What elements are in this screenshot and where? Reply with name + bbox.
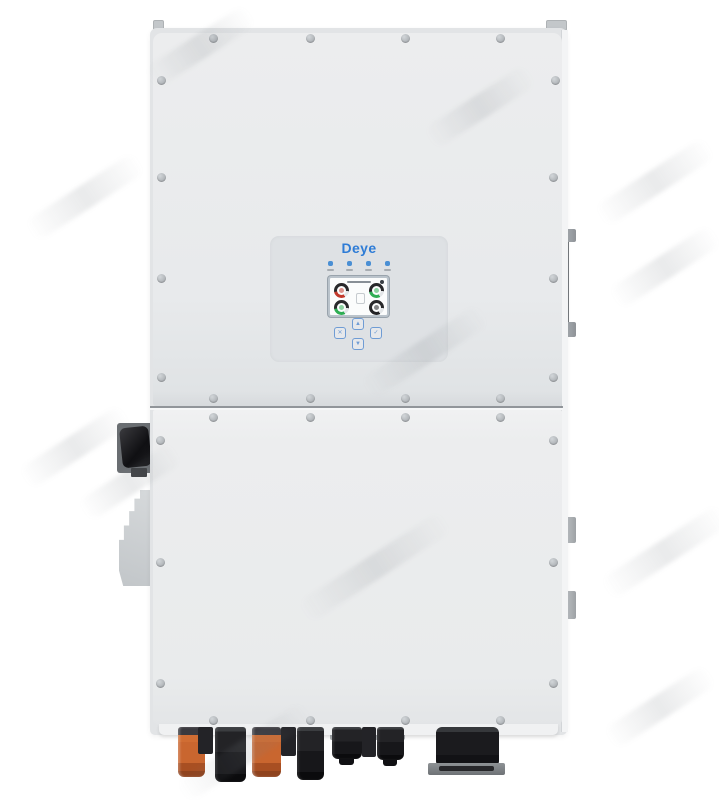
- brand-logo: Deye: [270, 241, 448, 255]
- watermark-streak: [603, 664, 717, 749]
- screw: [209, 413, 218, 422]
- panel-seam-highlight: [150, 408, 563, 410]
- screw: [401, 394, 410, 403]
- screw: [496, 413, 505, 422]
- screw: [157, 173, 166, 182]
- up-button: ▲: [352, 318, 364, 330]
- energy-flow-diagram: [356, 293, 365, 304]
- connector-stub-2: [281, 727, 296, 756]
- lower-wiring-panel: [153, 410, 562, 724]
- battery-connector-orange-2: [252, 727, 281, 777]
- grid-gauge: [369, 283, 384, 298]
- led-label: [365, 269, 372, 271]
- screw: [157, 373, 166, 382]
- watermark-streak: [600, 504, 719, 600]
- product-photo-deye-inverter: Deye ▲ ✕ ✓ ▼: [0, 0, 719, 800]
- screw: [209, 394, 218, 403]
- led-icon: [366, 261, 371, 266]
- status-led-2: [346, 261, 353, 273]
- led-icon: [328, 261, 333, 266]
- pv-connector-1-tip: [339, 759, 354, 765]
- screw: [156, 679, 165, 688]
- dc-switch-knob: [119, 426, 152, 469]
- screw: [551, 76, 560, 85]
- led-label: [384, 269, 391, 271]
- screw: [549, 436, 558, 445]
- screw: [306, 34, 315, 43]
- down-button: ▼: [352, 338, 364, 350]
- battery-connector-black-1: [215, 727, 246, 782]
- pv-connector-3: [377, 727, 404, 760]
- status-led-3: [365, 261, 372, 273]
- side-heatsink-bracket: [119, 490, 154, 586]
- ac-gland-body: [436, 727, 499, 767]
- watermark-streak: [24, 152, 146, 243]
- chassis-right-edge: [561, 30, 568, 732]
- pv-connector-3-tip: [383, 760, 397, 766]
- enter-button: ✓: [370, 327, 382, 339]
- screw: [156, 436, 165, 445]
- watermark-streak: [594, 137, 716, 228]
- screw: [401, 413, 410, 422]
- screw: [306, 394, 315, 403]
- status-led-1: [327, 261, 334, 273]
- screw: [549, 173, 558, 182]
- connector-stub-1: [198, 727, 213, 754]
- watermark-streak: [18, 404, 132, 489]
- lcd-screen: [328, 276, 389, 317]
- screw: [496, 716, 505, 725]
- led-row: [270, 261, 448, 273]
- led-label: [346, 269, 353, 271]
- pv-connector-1: [332, 727, 362, 759]
- screw: [549, 373, 558, 382]
- dc-switch-foot: [131, 468, 147, 477]
- pv-gauge: [334, 283, 349, 298]
- screw: [209, 34, 218, 43]
- screw: [496, 34, 505, 43]
- status-led-4: [384, 261, 391, 273]
- screw: [306, 716, 315, 725]
- screw: [549, 679, 558, 688]
- screw: [496, 394, 505, 403]
- screen-title-text: [347, 281, 371, 283]
- screw: [401, 34, 410, 43]
- screw: [156, 558, 165, 567]
- led-icon: [347, 261, 352, 266]
- pv-connector-2: [362, 727, 376, 757]
- led-icon: [385, 261, 390, 266]
- control-panel: Deye ▲ ✕ ✓ ▼: [270, 236, 448, 362]
- screw: [549, 558, 558, 567]
- screw: [549, 274, 558, 283]
- esc-button: ✕: [334, 327, 346, 339]
- battery-connector-black-2: [297, 727, 324, 780]
- ac-gland-slot: [439, 766, 494, 771]
- screw: [401, 716, 410, 725]
- load-gauge: [369, 300, 384, 315]
- screw: [157, 76, 166, 85]
- watermark-streak: [608, 224, 719, 309]
- battery-gauge: [334, 300, 349, 315]
- led-label: [327, 269, 334, 271]
- screw: [157, 274, 166, 283]
- screw: [306, 413, 315, 422]
- screw: [209, 716, 218, 725]
